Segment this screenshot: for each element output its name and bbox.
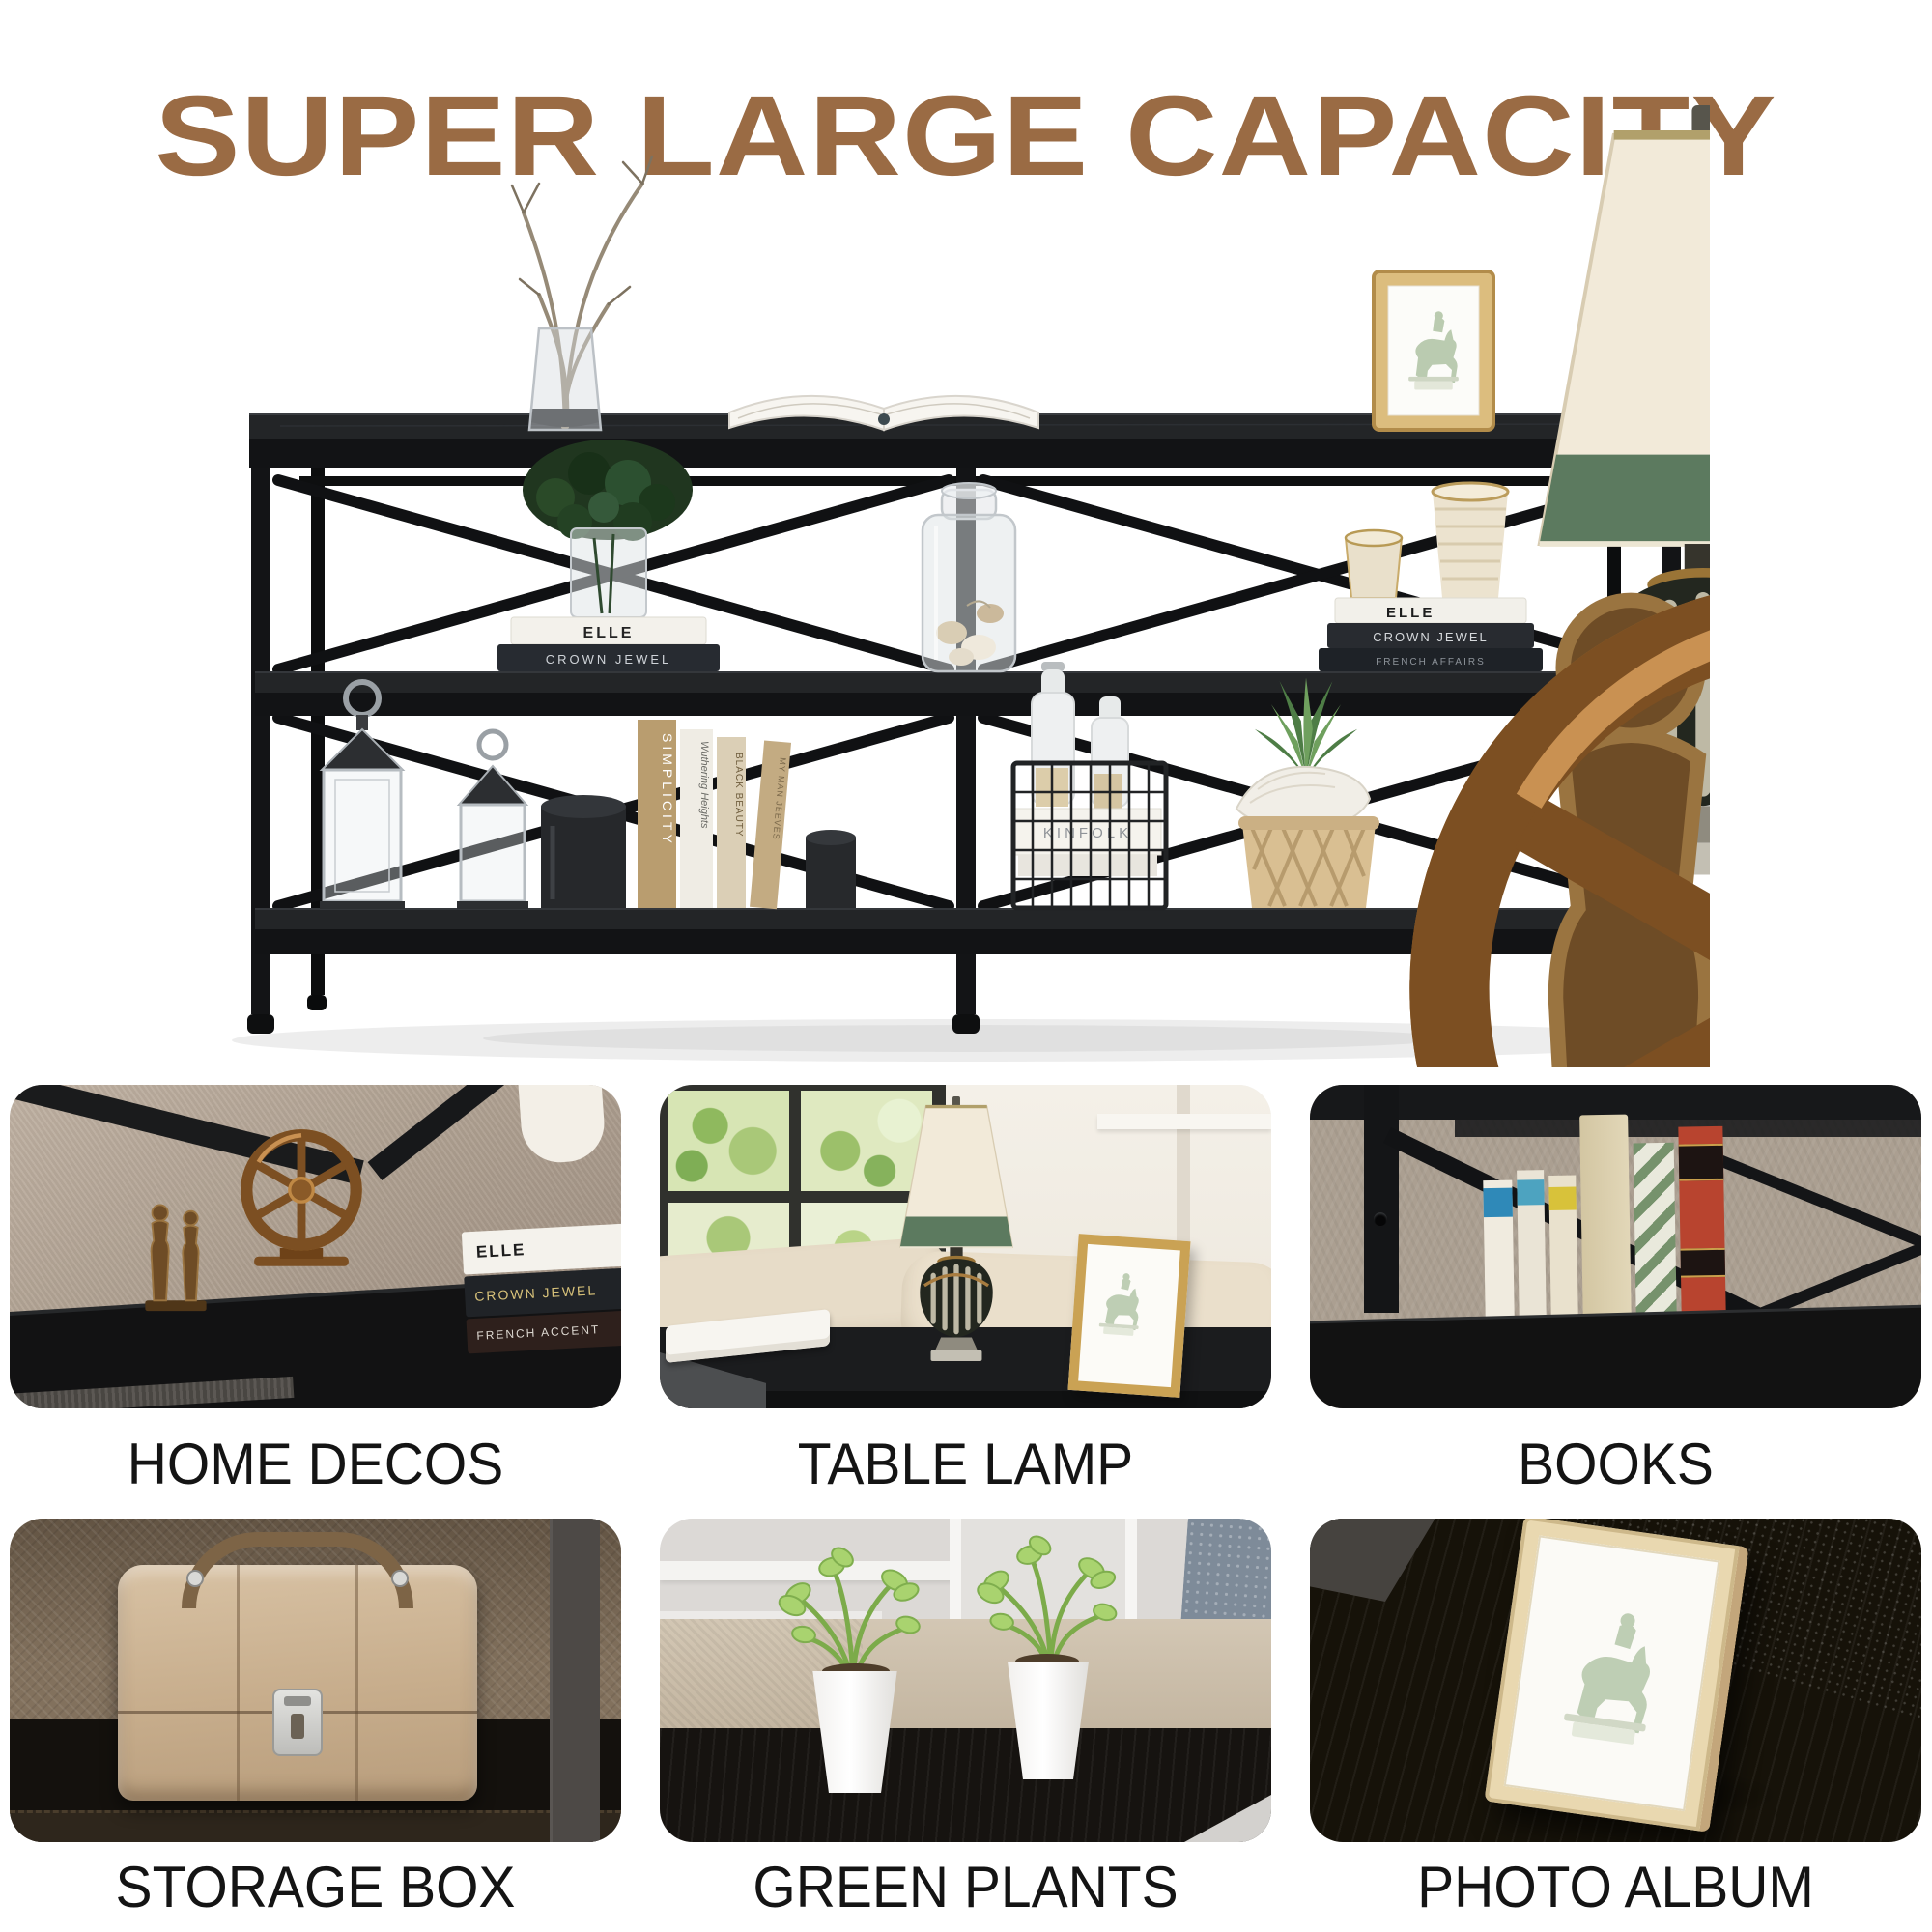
black-table: [660, 1728, 1271, 1842]
clasp-slot: [291, 1714, 304, 1739]
caption-photo-album: PHOTO ALBUM: [1325, 1842, 1906, 1931]
feature-card-storage-box: STORAGE BOX: [10, 1519, 621, 1931]
svg-text:Wuthering Heights: Wuthering Heights: [698, 741, 710, 829]
feature-grid: ELLE CROWN JEWEL FRENCH ACCENT HOME DECO…: [10, 1085, 1922, 1931]
photo-frame: [1374, 271, 1493, 430]
photo-frame: [1484, 1519, 1748, 1833]
leather-case: [118, 1565, 477, 1801]
clasp: [272, 1689, 323, 1756]
svg-text:CROWN JEWEL: CROWN JEWEL: [546, 652, 672, 667]
hero-product-photo: ELLE CROWN JEWEL: [222, 92, 1710, 1067]
lanterns: [320, 682, 528, 909]
book-title: FRENCH ACCENT: [476, 1322, 601, 1343]
bronze-wheel-icon: [224, 1123, 379, 1268]
book-title: ELLE: [475, 1240, 526, 1263]
binoculars-icon: [145, 1199, 207, 1313]
crown-molding: [1097, 1114, 1271, 1129]
candle-cup-large: [541, 795, 626, 908]
black-shelf: [1310, 1307, 1921, 1408]
glass-jar-with-shells: [923, 483, 1015, 671]
book-row: [1482, 1113, 1726, 1327]
feature-card-green-plants: GREEN PLANTS: [660, 1519, 1271, 1931]
book-spine: ELLE: [462, 1224, 621, 1275]
book-spine: [1634, 1143, 1677, 1325]
rivet: [391, 1570, 409, 1587]
photo-books: [1310, 1085, 1921, 1408]
photo-table-lamp: [660, 1085, 1271, 1408]
book-spine: [1579, 1115, 1632, 1326]
caption-home-decos: HOME DECOS: [25, 1408, 606, 1519]
svg-text:CROWN JEWEL: CROWN JEWEL: [1373, 630, 1489, 644]
photo-photo-album: [1310, 1519, 1921, 1842]
caption-table-lamp: TABLE LAMP: [675, 1408, 1256, 1519]
svg-text:FRENCH AFFAIRS: FRENCH AFFAIRS: [1376, 657, 1486, 668]
photo-green-plants: [660, 1519, 1271, 1842]
branch-vase: [512, 156, 652, 430]
book-title: CROWN JEWEL: [474, 1282, 598, 1304]
book-stack: ELLE CROWN JEWEL FRENCH ACCENT: [462, 1224, 621, 1354]
feature-card-table-lamp: TABLE LAMP: [660, 1085, 1271, 1519]
table-lamp-icon: [880, 1096, 1033, 1365]
feature-card-books: BOOKS: [1310, 1085, 1921, 1519]
horse-picture: [1539, 1575, 1684, 1774]
svg-text:SIMPLICITY: SIMPLICITY: [660, 733, 675, 847]
book-spine: [1548, 1176, 1578, 1326]
book-spine: [1483, 1180, 1515, 1328]
product-infographic: SUPER LARGE CAPACITY: [0, 0, 1932, 1932]
svg-text:ELLE: ELLE: [583, 625, 635, 641]
photo-storage-box: [10, 1519, 621, 1842]
shelf-lip: [10, 1810, 621, 1842]
case-handle: [182, 1532, 413, 1608]
vases-and-books: ELLE CROWN JEWEL FRENCH AFFAIRS: [1319, 483, 1543, 671]
clasp-bar: [284, 1696, 311, 1706]
feature-card-photo-album: PHOTO ALBUM: [1310, 1519, 1921, 1931]
standing-books: SIMPLICITY Wuthering Heights BLACK BEAUT…: [638, 720, 791, 909]
horse-picture: [1088, 1250, 1152, 1354]
caption-green-plants: GREEN PLANTS: [675, 1842, 1256, 1931]
gray-pillar: [550, 1519, 600, 1842]
book-spine: CROWN JEWEL: [464, 1268, 621, 1318]
book-spine: [1678, 1126, 1726, 1324]
caption-storage-box: STORAGE BOX: [25, 1842, 606, 1931]
book-spine: [1517, 1170, 1547, 1326]
rivet: [186, 1570, 204, 1587]
console-table: ELLE CROWN JEWEL: [222, 92, 1710, 1067]
caption-books: BOOKS: [1325, 1408, 1906, 1519]
svg-text:KINFOLK: KINFOLK: [1043, 825, 1132, 841]
photo-frame: [1067, 1234, 1190, 1398]
photo-home-decos: ELLE CROWN JEWEL FRENCH ACCENT: [10, 1085, 621, 1408]
middle-shelf: [255, 671, 1677, 716]
svg-text:ELLE: ELLE: [1386, 605, 1435, 621]
candle-cup-small: [806, 830, 856, 908]
window-pane: [668, 1091, 789, 1191]
screw-hole: [1374, 1212, 1387, 1226]
feature-card-home-decos: ELLE CROWN JEWEL FRENCH ACCENT HOME DECO…: [10, 1085, 621, 1519]
svg-text:BLACK BEAUTY: BLACK BEAUTY: [733, 753, 744, 838]
left-post: [1364, 1085, 1399, 1313]
